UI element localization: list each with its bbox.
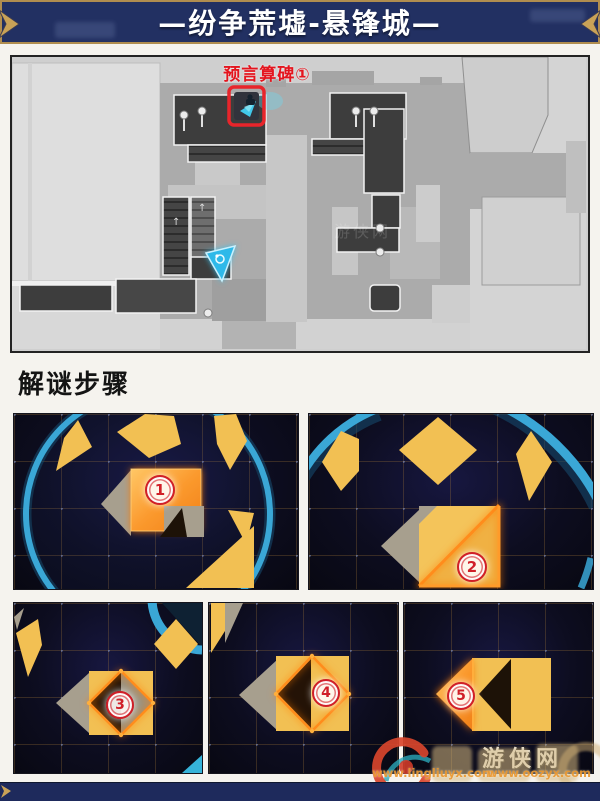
puzzle-step-3: 3: [13, 602, 203, 774]
url-watermark-left: www.lingliuyx.com: [372, 766, 494, 780]
minimap: ↑↑ 游侠网: [12, 57, 586, 349]
puzzle-3-graphic: [14, 603, 202, 773]
svg-text:↑: ↑: [172, 217, 180, 228]
map-watermark: 游侠网: [334, 222, 391, 241]
step-badge-3: 3: [106, 691, 134, 719]
step-badge-2: 2: [457, 552, 487, 582]
page-title: —纷争荒墟-悬锋城—: [158, 2, 442, 42]
watermark-remnant: [55, 22, 115, 38]
puzzle-step-1: 1: [13, 413, 299, 590]
puzzle-2-graphic: [309, 414, 593, 589]
chevron-ornament-icon: [0, 784, 14, 799]
page-root: { "header": { "title": "—纷争荒墟-悬锋城—", "ba…: [0, 0, 600, 800]
chevron-right-ornament-icon: [0, 8, 22, 40]
chevron-left-ornament-icon: [578, 8, 600, 40]
step-badge-4: 4: [312, 679, 340, 707]
watermark-remnant: [530, 9, 585, 22]
footer-bar: [0, 782, 600, 801]
section-heading: 解谜步骤: [18, 364, 130, 401]
minimap-panel: ↑↑ 游侠网 预言算碑①: [10, 55, 590, 353]
url-watermark-right: www.oozyx.com: [487, 766, 591, 780]
step-badge-5: 5: [447, 682, 475, 710]
puzzle-step-2: 2: [308, 413, 594, 590]
svg-text:↑: ↑: [198, 203, 206, 214]
map-marker-label: 预言算碑①: [192, 60, 342, 85]
step-badge-1: 1: [145, 475, 175, 505]
